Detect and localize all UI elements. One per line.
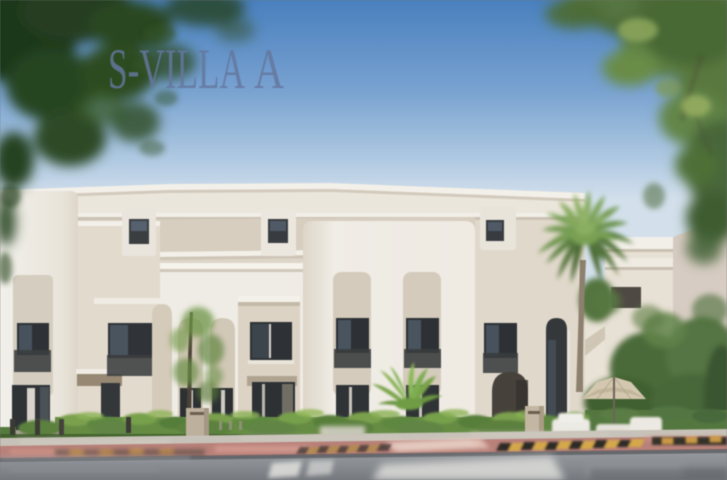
svg-text:A: A [254,38,284,101]
svg-text:S-VILLA: S-VILLA [108,38,245,101]
